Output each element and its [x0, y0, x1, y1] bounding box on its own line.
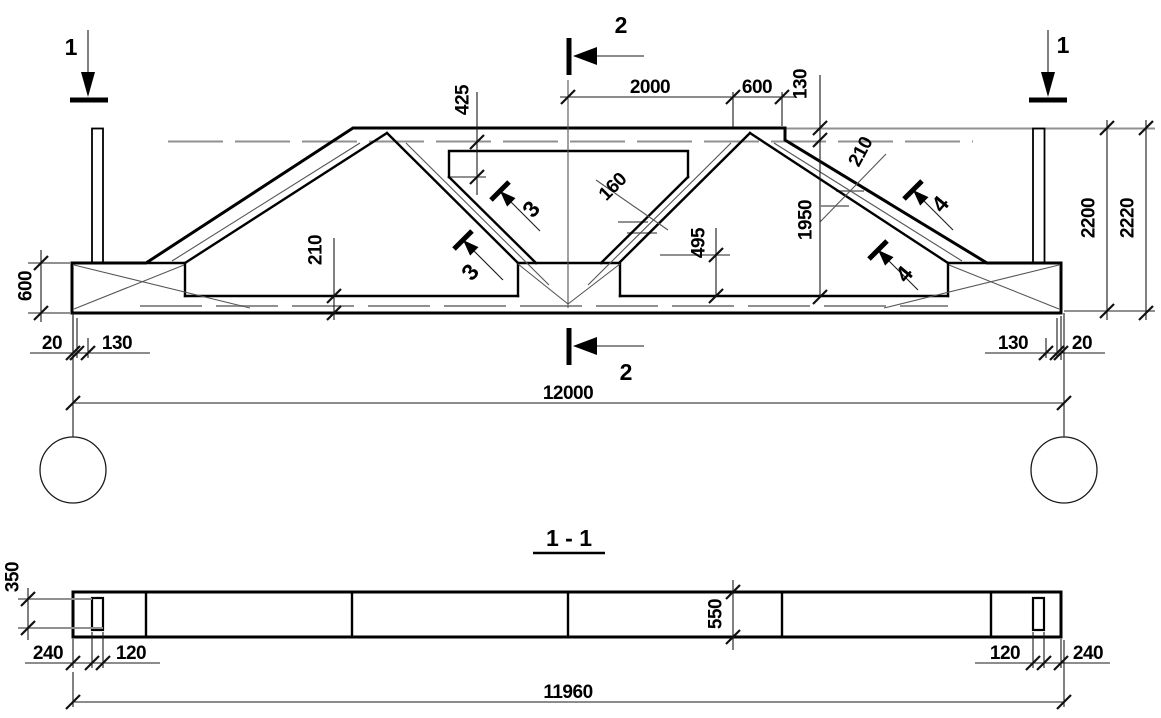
dim-step-130: 130 — [791, 69, 812, 99]
section-marks: 1 1 2 2 — [65, 12, 1070, 385]
right-post — [1033, 129, 1045, 264]
section-dimensions: 350 240 120 550 120 240 — [3, 562, 1111, 709]
detail-mark-4-lower: 4 — [869, 241, 918, 290]
section-title-label: 1 - 1 — [546, 525, 592, 551]
dim-350: 350 — [3, 562, 24, 592]
dim-550: 550 — [706, 599, 727, 629]
dim-120-right: 120 — [990, 643, 1020, 664]
dim-top-2000: 2000 — [630, 77, 670, 98]
grid-bubble-right — [1031, 437, 1097, 503]
detail-mark-4-lower-label: 4 — [890, 261, 918, 288]
section-mark-2-bottom-label: 2 — [620, 359, 633, 385]
detail-mark-3-upper-label: 3 — [517, 196, 545, 223]
section-hole-right — [1033, 598, 1044, 630]
truss-elevation: 2000 600 130 1950 2200 2220 600 210 — [16, 12, 1156, 503]
dim-12000: 12000 — [543, 383, 593, 404]
detail-mark-4-upper-label: 4 — [926, 191, 954, 218]
section-joints — [146, 592, 991, 637]
section-1-1-view: 1 - 1 350 240 120 — [3, 525, 1111, 709]
dim-slot-160: 160 — [595, 169, 631, 205]
dim-240-right: 240 — [1073, 643, 1103, 664]
truss-technical-drawing: 2000 600 130 1950 2200 2220 600 210 — [0, 0, 1161, 718]
section-hole-left — [92, 598, 103, 630]
section-mark-1-right-label: 1 — [1057, 32, 1070, 58]
section-mark-1-left-label: 1 — [65, 34, 78, 60]
dim-2220: 2220 — [1118, 198, 1139, 238]
dim-2200: 2200 — [1079, 198, 1100, 238]
section-title: 1 - 1 — [533, 525, 605, 553]
dim-bl-20: 20 — [42, 333, 62, 354]
section-mark-2-top: 2 — [569, 12, 644, 75]
dim-br-20: 20 — [1072, 333, 1092, 354]
drawing-page: 2000 600 130 1950 2200 2220 600 210 — [0, 0, 1161, 718]
detail-mark-3-lower-label: 3 — [456, 259, 484, 286]
section-mark-2-top-label: 2 — [615, 12, 628, 38]
detail-mark-3-upper: 3 — [491, 182, 545, 231]
dim-top-600: 600 — [742, 77, 772, 98]
dim-chord-210: 210 — [306, 235, 327, 265]
dim-425: 425 — [453, 84, 474, 115]
dim-bl-130: 130 — [102, 333, 132, 354]
grid-bubble-left — [40, 437, 106, 503]
elevation-dimensions: 2000 600 130 1950 2200 2220 600 210 — [16, 69, 1154, 410]
detail-mark-4-upper: 4 — [904, 181, 954, 230]
dim-br-130: 130 — [998, 333, 1028, 354]
dim-120-left: 120 — [116, 643, 146, 664]
dim-240-left: 240 — [33, 643, 63, 664]
dim-chord-210-right: 210 — [845, 134, 878, 171]
dim-1950: 1950 — [796, 200, 817, 240]
dim-end-600: 600 — [16, 271, 37, 301]
left-strut-edge — [387, 133, 518, 263]
section-mark-1-left: 1 — [65, 30, 108, 100]
right-strut-edge — [619, 133, 750, 263]
section-mark-1-right: 1 — [1029, 30, 1070, 100]
section-mark-2-bottom: 2 — [569, 328, 644, 385]
dim-11960: 11960 — [543, 682, 592, 703]
dim-495: 495 — [689, 227, 710, 258]
left-post — [92, 129, 103, 264]
left-chord-inner-edge — [185, 133, 387, 263]
